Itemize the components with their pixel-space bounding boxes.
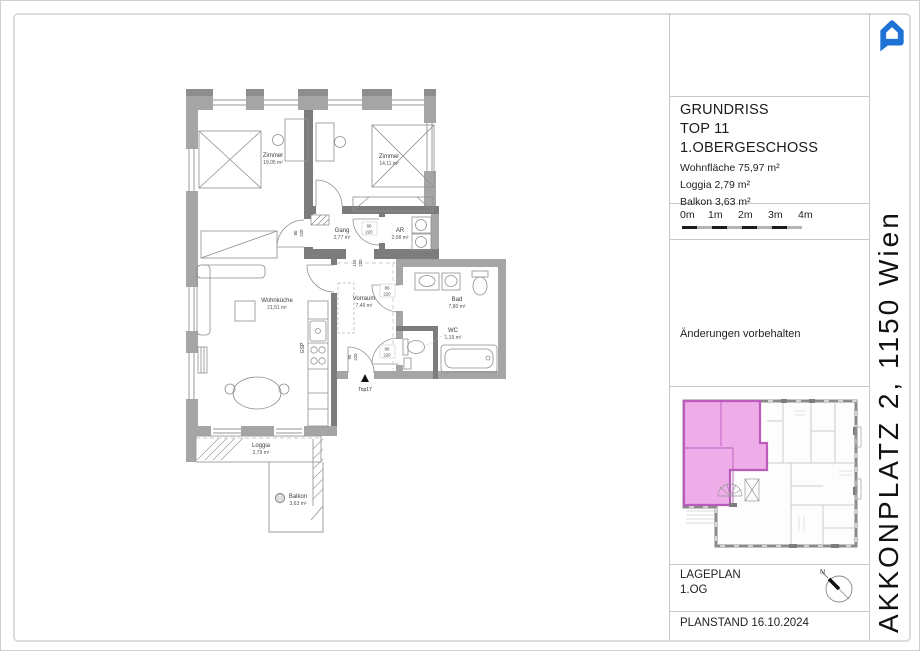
lageplan-title: LAGEPLAN [680, 568, 741, 583]
room-wohnkueche-name: Wohnküche [261, 298, 293, 304]
dim-text: 220 [383, 292, 391, 297]
floorplan-drawing: Top17 Zimmer 19,05 m² Zimmer 14,11 m² Ga… [1, 1, 669, 651]
title-column: GRUNDRISS TOP 11 1.OBERGESCHOSS Wohnfläc… [669, 13, 870, 640]
project-address: AKKONPLATZ 2, 1150 Wien [873, 210, 905, 633]
sheet-title: GRUNDRISS [680, 101, 818, 120]
plan-sheet: Top17 Zimmer 19,05 m² Zimmer 14,11 m² Ga… [0, 0, 920, 651]
room-zimmer2-name: Zimmer [379, 154, 399, 160]
walls [186, 89, 506, 462]
room-gang-area: 2,77 m² [334, 235, 351, 241]
room-zimmer2-area: 14,11 m² [379, 161, 399, 167]
scale-tick: 0m [680, 209, 695, 221]
north-arrow-icon: N [812, 565, 864, 609]
scale-tick: 4m [798, 209, 813, 221]
dim-text: 80 [367, 224, 372, 229]
chimney [311, 215, 329, 225]
company-logo [877, 17, 907, 54]
dim-text: 90 [347, 354, 352, 359]
room-zimmer1-area: 19,05 m² [263, 160, 283, 166]
room-ar-name: AR [396, 228, 405, 234]
plan-date: PLANSTAND 16.10.2024 [680, 617, 809, 629]
room-bad-area: 7,80 m² [449, 304, 466, 310]
disclaimer-note: Änderungen vorbehalten [680, 328, 800, 340]
room-balkon-name: Balkon [289, 494, 307, 500]
loggia-area: Loggia 2,79 m² [680, 178, 818, 192]
lageplan-block: LAGEPLAN 1.OG [680, 568, 741, 598]
scale-tick: 3m [768, 209, 783, 221]
dim-text: 80 [293, 230, 298, 235]
dim-text: 80 [385, 286, 390, 291]
floor-name: 1.OBERGESCHOSS [680, 139, 818, 158]
scale-tick: 1m [708, 209, 723, 221]
north-label: N [820, 569, 825, 576]
room-wohnkueche-area: 21,51 m² [267, 305, 287, 311]
dim-text: 110 [352, 259, 357, 266]
dim-text: 80 [385, 347, 390, 352]
scale-tick: 2m [738, 209, 753, 221]
room-wc-area: 1,19 m² [445, 335, 462, 341]
room-ar-area: 2,08 m² [392, 235, 409, 241]
dim-text: 220 [383, 353, 391, 358]
entrance-label: Top17 [358, 387, 372, 393]
dim-text: 220 [299, 229, 304, 237]
dim-text: 220 [358, 259, 363, 267]
room-wc-name: WC [448, 328, 459, 334]
room-balkon-area: 3,63 m² [290, 501, 307, 507]
living-area: Wohnfläche 75,97 m² [680, 161, 818, 175]
unit-number: TOP 11 [680, 120, 818, 139]
room-loggia-area: 2,79 m² [253, 450, 270, 456]
room-gang-name: Gang [335, 228, 350, 234]
site-plan-map [674, 391, 866, 559]
room-zimmer1-name: Zimmer [263, 153, 283, 159]
dishwasher-label: GSP [300, 342, 306, 353]
room-bad-name: Bad [452, 297, 463, 303]
room-loggia-name: Loggia [252, 443, 271, 449]
dim-text: 220 [353, 353, 358, 361]
scale-bar-line [682, 226, 802, 229]
title-block: GRUNDRISS TOP 11 1.OBERGESCHOSS Wohnfläc… [680, 101, 818, 209]
room-vorraum-area: 7,46 m² [356, 303, 373, 309]
room-vorraum-name: Vorraum [353, 296, 376, 302]
lageplan-floor: 1.OG [680, 583, 741, 598]
scale-bar: 0m 1m 2m 3m 4m [680, 209, 860, 245]
balcony-area: Balkon 3,63 m² [680, 195, 818, 209]
dim-text: 220 [365, 230, 373, 235]
furniture [197, 119, 497, 426]
